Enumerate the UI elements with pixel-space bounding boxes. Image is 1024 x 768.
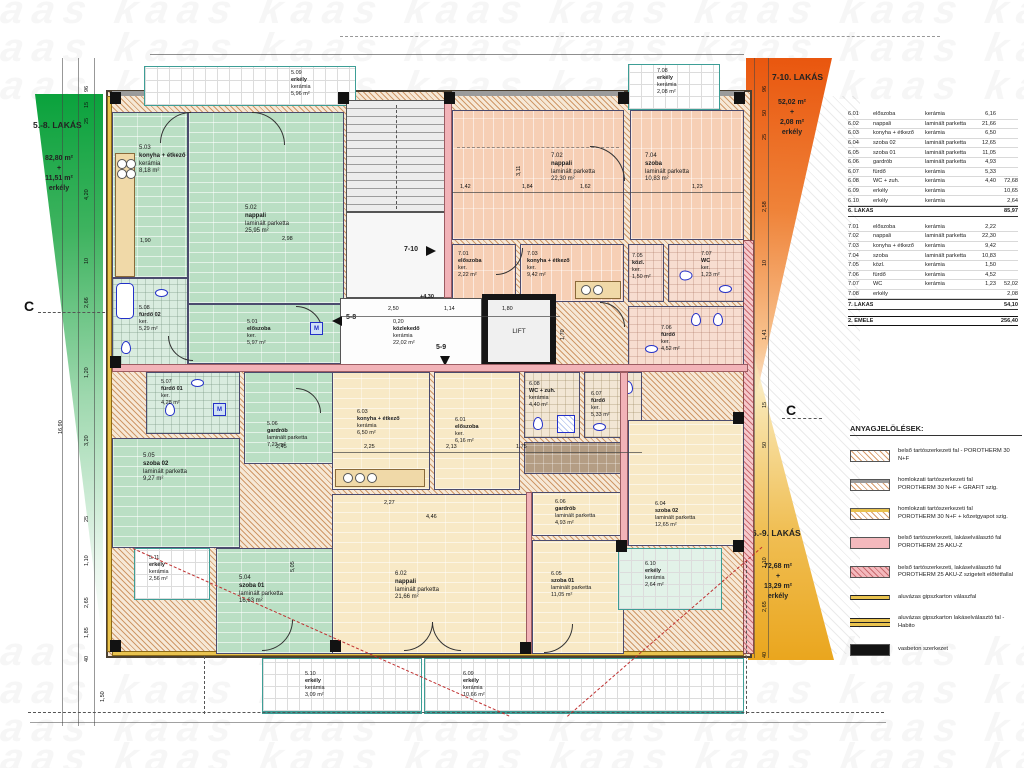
cell-room-number: 6.03: [848, 130, 873, 136]
cell-area: 2,22: [977, 224, 996, 230]
legend-item: belső tartószerkezeti, lakáselválasztó f…: [850, 565, 1022, 581]
arrow-right-icon: [426, 246, 436, 256]
watermark-text: kaas kaas kaas kaas kaas kaas kaas kaas …: [0, 0, 1024, 33]
table-row: 7.07 WC kerámia 1,23 52,02: [848, 280, 1018, 290]
room-number: 7.08: [657, 68, 677, 75]
balcony-609: 6.09 erkély kerámia 10,66 m²: [424, 658, 744, 714]
room-number: 5.01: [247, 319, 271, 326]
cell-total: 52,02: [996, 281, 1018, 287]
stair-label-59: 5-9: [436, 344, 446, 351]
dim-number: 1,41: [762, 329, 768, 340]
room-area: 3,09 m²: [305, 692, 325, 699]
hall-kozlekedo: 0,20 közlekedő kerámia 22,02 m²: [340, 298, 482, 368]
dim-number: 2,50: [388, 306, 399, 312]
cell-area: 6,50: [977, 130, 996, 136]
hall-wall-thickness: 0,20: [393, 319, 420, 326]
aku-wall: [620, 372, 628, 546]
cell-room-number: 7. LAKÁS: [848, 302, 873, 308]
room-area: 10,83 m²: [645, 176, 689, 184]
room-name: erkély: [291, 77, 311, 84]
legend-item: aluvázas gipszkarton válaszfal: [850, 594, 1022, 602]
bidet: [713, 313, 723, 326]
cell-material: kerámia: [925, 178, 977, 184]
table-row: 6.07 fürdő kerámia 5,33: [848, 168, 1018, 178]
room-area: 7,23 m²: [267, 442, 307, 449]
dim-chain-line: [754, 58, 755, 658]
room-material: ker.: [458, 265, 482, 272]
table-row: 7. LAKÁS 54,10: [848, 299, 1018, 310]
aku-wall: [526, 492, 532, 654]
room-area: 11,05 m²: [551, 592, 591, 599]
cell-material: laminált parketta: [925, 253, 977, 259]
room-gardrob-5: 5.06 gardrób laminált parketta 7,23 m²: [244, 372, 344, 464]
room-label: 5.08 fürdő 02 ker. 5,29 m²: [139, 305, 161, 334]
room-material: kerámia: [357, 423, 400, 430]
cell-area: 22,30: [977, 233, 996, 239]
cell-material: kerámia: [925, 224, 977, 230]
cell-room-name: gardrób: [873, 159, 925, 165]
room-label: 6.01 előszoba ker. 6,16 m²: [455, 417, 479, 446]
table-row: 6.06 gardrób laminált parketta 4,93: [848, 158, 1018, 168]
room-area: 21,66 m²: [395, 594, 439, 602]
room-name: konyha + étkező: [527, 258, 570, 265]
stair-label-up: 7-10: [404, 246, 418, 253]
plus-sign: +: [770, 108, 814, 118]
room-material: ker.: [591, 405, 610, 412]
room-furdo01-5: M 5.07 fürdő 01 ker. 4,28 m²: [146, 372, 240, 434]
dim-number: 1,85: [84, 627, 90, 638]
room-label: 5.06 gardrób laminált parketta 7,23 m²: [267, 421, 307, 450]
room-label: 7.04 szoba laminált parketta 10,83 m²: [645, 153, 689, 184]
cell-room-name: erkély: [873, 291, 925, 297]
zone-amber-balcony-m2: 13,29 m²: [756, 582, 800, 592]
zone-green-balcony-label: erkély: [30, 184, 88, 194]
balcony-509: 5.09 erkély kerámia 5,96 m²: [144, 66, 356, 106]
legend-swatch: [850, 450, 890, 462]
table-row: 7.02 nappali laminált parketta 22,30: [848, 232, 1018, 242]
dim-number: 50: [762, 110, 768, 116]
room-name: erkély: [463, 678, 485, 685]
toilet: [691, 313, 701, 326]
room-number: 5.02: [245, 205, 289, 213]
wall-aku-insulated-strip: [743, 240, 754, 654]
ground-line: [30, 722, 886, 723]
room-number: 6.10: [645, 561, 665, 568]
cell-total: 10,65: [996, 188, 1018, 194]
dim-number: 1,84: [522, 184, 533, 190]
room-label: 7.01 előszoba ker. 2,22 m²: [458, 251, 482, 280]
dim-number-outer: 16,90: [58, 420, 64, 434]
dim-number: 40: [762, 652, 768, 658]
cell-total: 54,10: [996, 302, 1018, 308]
cell-room-name: fürdő: [873, 169, 925, 175]
boundary-dashed-line: [28, 712, 884, 713]
legend-swatch: [850, 537, 890, 549]
cell-room-number: 6.08: [848, 178, 873, 184]
legend-text: aluvázas gipszkarton válaszfal: [898, 594, 976, 602]
dim-number: 25: [762, 134, 768, 140]
dim-number: 1,20: [84, 367, 90, 378]
balcony-511: 5.11 erkély kerámia 2,56 m²: [134, 548, 210, 600]
watermark-text: kaas kaas kaas kaas kaas kaas kaas kaas …: [0, 736, 1024, 768]
sink: [191, 379, 204, 387]
room-name: erkély: [305, 678, 325, 685]
room-label: 6.02 nappali laminált parketta 21,66 m²: [395, 571, 439, 602]
cell-material: laminált parketta: [925, 140, 977, 146]
legend-swatch: [850, 644, 890, 656]
room-material: kerámia: [305, 685, 325, 692]
room-label: 5.05 szoba 02 laminált parketta 9,27 m²: [143, 453, 187, 484]
cell-room-number: 2. EMELET ÖSSZESEN: [848, 318, 873, 324]
room-name: WC: [701, 258, 720, 265]
room-material: kerámia: [149, 569, 169, 576]
room-area: 5,29 m²: [139, 326, 161, 333]
room-label: 7.05 közl. ker. 1,50 m²: [632, 253, 651, 282]
table-row: 7.04 szoba laminált parketta 10,83: [848, 251, 1018, 261]
room-material: kerámia: [291, 84, 311, 91]
dim-number: 2,98: [282, 236, 293, 242]
room-label: 5.10 erkély kerámia 3,09 m²: [305, 671, 325, 700]
cell-room-number: 7.08: [848, 291, 873, 297]
legend-line-1: vasbeton szerkezet: [898, 646, 948, 654]
cell-total: 85,97: [996, 208, 1018, 214]
room-name: előszoba: [455, 424, 479, 431]
room-label: 5.03 konyha + étkező kerámia 8,18 m²: [139, 145, 186, 176]
room-name: erkély: [645, 568, 665, 575]
dim-number: 1,62: [580, 184, 591, 190]
room-name: szoba 02: [655, 508, 695, 515]
legend-text: vasbeton szerkezet: [898, 646, 948, 654]
legend-text: homlokzati tartószerkezeti fal POROTHERM…: [898, 477, 998, 493]
cell-room-name: WC: [873, 281, 925, 287]
concrete-column: [338, 92, 349, 104]
washing-machine: M: [213, 403, 226, 416]
dim-number: 50: [762, 442, 768, 448]
legend-line-1: belső tartószerkezeti, lakáselválasztó f…: [898, 535, 1001, 543]
room-area: 4,40 m²: [529, 402, 555, 409]
room-label: 6.08 WC + zuh. kerámia 4,40 m²: [529, 381, 555, 410]
toilet: [533, 417, 543, 430]
zone-green-balcony-m2: 11,51 m²: [30, 174, 88, 184]
dim-number: 2,58: [762, 201, 768, 212]
cell-area: 21,66: [977, 121, 996, 127]
room-material: ker.: [455, 431, 479, 438]
room-name: nappali: [551, 161, 595, 169]
dim-number: 1,23: [692, 184, 703, 190]
dim-number: 96: [762, 86, 768, 92]
cell-room-number: 6.07: [848, 169, 873, 175]
room-material: ker.: [632, 267, 651, 274]
room-area: 5,96 m²: [291, 91, 311, 98]
table-row: 2. EMELET ÖSSZESEN 256,40: [848, 316, 1018, 327]
cell-room-number: 6. LAKÁS: [848, 208, 873, 214]
cell-material: laminált parketta: [925, 159, 977, 165]
room-material: laminált parketta: [551, 585, 591, 592]
room-name: fürdő: [661, 332, 680, 339]
table-row: 6.09 erkély kerámia 10,65: [848, 187, 1018, 197]
cell-area: 11,05: [977, 150, 996, 156]
room-konyha-6: 6.03 konyha + étkező kerámia 6,50 m²: [332, 372, 430, 490]
room-furdo-7: 7.06 fürdő ker. 4,52 m²: [628, 306, 744, 366]
room-label: 7.03 konyha + étkező ker. 9,42 m²: [527, 251, 570, 280]
room-material: kerámia: [657, 82, 677, 89]
dim-number: 25: [84, 516, 90, 522]
plus-sign: +: [30, 164, 88, 174]
cell-area: 9,42: [977, 243, 996, 249]
room-number: 6.06: [555, 499, 595, 506]
room-material: kerámia: [393, 333, 420, 340]
room-label: 6.03 konyha + étkező kerámia 6,50 m²: [357, 409, 400, 438]
room-number: 7.07: [701, 251, 720, 258]
room-number: 6.01: [455, 417, 479, 424]
legend-item: homlokzati tartószerkezeti fal POROTHERM…: [850, 506, 1022, 522]
cell-room-name: előszoba: [873, 111, 925, 117]
room-szoba-7: 7.04 szoba laminált parketta 10,83 m²: [630, 110, 744, 240]
cell-total: 2,64: [996, 198, 1018, 204]
room-area: 2,56 m²: [149, 576, 169, 583]
room-name: szoba 01: [239, 583, 283, 591]
dim-number: 1,80: [502, 306, 513, 312]
room-material: laminált parketta: [143, 469, 187, 477]
concrete-column: [734, 92, 745, 104]
dim-number: 5,05: [290, 561, 296, 572]
legend-text: aluvázas gipszkarton lakáselválasztó fal…: [898, 615, 1022, 631]
dim-number: 10: [84, 258, 90, 264]
dim-chain-line: [62, 58, 63, 726]
room-area: 6,16 m²: [455, 438, 479, 445]
section-marker-c-right: C: [786, 402, 796, 418]
cell-material: kerámia: [925, 188, 977, 194]
table-row: 6.02 nappali laminált parketta 21,66: [848, 120, 1018, 130]
room-area: 1,23 m²: [701, 272, 720, 279]
room-wc-7: 7.07 WC ker. 1,23 m²: [668, 244, 744, 302]
cell-room-number: 6.02: [848, 121, 873, 127]
room-number: 7.06: [661, 325, 680, 332]
cell-room-number: 6.09: [848, 188, 873, 194]
shower: [557, 415, 575, 433]
cell-room-number: 7.04: [848, 253, 873, 259]
legend-line-2: POROTHERM 30 N+F + kőzetgyapot szig.: [898, 514, 1008, 522]
dim-number: 3,20: [84, 435, 90, 446]
sink: [719, 285, 732, 293]
zone-green-title: 5.-8. LAKÁS: [33, 120, 82, 130]
watermark-text: kaas kaas kaas kaas kaas kaas kaas kaas …: [0, 26, 1024, 71]
room-name: fürdő 02: [139, 312, 161, 319]
room-material: ker.: [139, 319, 161, 326]
concrete-column: [618, 92, 629, 104]
legend-item: belső tartószerkezeti, lakáselválasztó f…: [850, 535, 1022, 551]
dim-number: 1,75: [516, 444, 527, 450]
room-area: 8,18 m²: [139, 168, 186, 176]
room-number: 6.04: [655, 501, 695, 508]
legend-line-1: belső tartószerkezeti, lakáselválasztó f…: [898, 565, 1013, 573]
room-label: 0,20 közlekedő kerámia 22,02 m²: [393, 319, 420, 348]
dim-number: 96: [84, 86, 90, 92]
balcony-708: 7.08 erkély kerámia 2,08 m²: [628, 64, 720, 110]
room-name: gardrób: [267, 428, 307, 435]
concrete-column: [110, 92, 121, 104]
room-number: 7.03: [527, 251, 570, 258]
zone-amber-title: 6.-9. LAKÁS: [752, 528, 801, 538]
cell-area: 4,52: [977, 272, 996, 278]
balcony-610: 6.10 erkély kerámia 2,64 m²: [618, 548, 722, 610]
concrete-column: [520, 642, 531, 654]
table-row: 6.01 előszoba kerámia 6,16: [848, 110, 1018, 120]
room-name: nappali: [245, 213, 289, 221]
dim-number: 25: [84, 118, 90, 124]
cell-room-number: 7.03: [848, 243, 873, 249]
room-number: 5.09: [291, 70, 311, 77]
table-row: 6.08 WC + zuh. kerámia 4,40 72,68: [848, 177, 1018, 187]
staircase: [346, 100, 446, 212]
concrete-column: [110, 356, 121, 368]
room-number: 5.10: [305, 671, 325, 678]
legend-swatch: [850, 479, 890, 491]
hob-burner: [126, 169, 136, 179]
room-material: ker.: [247, 333, 271, 340]
cell-room-number: 6.05: [848, 150, 873, 156]
sink: [645, 345, 658, 353]
cell-material: kerámia: [925, 130, 977, 136]
section-line: [782, 418, 822, 419]
concrete-column: [444, 92, 455, 104]
room-label: 6.05 szoba 01 laminált parketta 11,05 m²: [551, 571, 591, 600]
materials-legend: ANYAGJELÖLÉSEK: belső tartószerkezeti fa…: [850, 424, 1022, 670]
dim-number: 2,65: [84, 597, 90, 608]
room-material: laminált parketta: [395, 587, 439, 595]
plus-sign: +: [756, 572, 800, 582]
room-area: 4,28 m²: [161, 400, 183, 407]
dim-number: 2,66: [84, 297, 90, 308]
sink: [593, 423, 606, 431]
toilet: [680, 271, 693, 281]
room-area: 12,65 m²: [655, 522, 695, 529]
room-area: 5,33 m²: [591, 412, 610, 419]
legend-item: belső tartószerkezeti fal - POROTHERM 30…: [850, 448, 1022, 464]
room-material: laminált parketta: [267, 435, 307, 442]
room-material: laminált parketta: [655, 515, 695, 522]
room-material: ker.: [161, 393, 183, 400]
room-number: 6.08: [529, 381, 555, 388]
room-label: 5.02 nappali laminált parketta 25,95 m²: [245, 205, 289, 236]
hob-burner: [593, 285, 603, 295]
room-area: 9,42 m²: [527, 272, 570, 279]
cell-material: kerámia: [925, 281, 977, 287]
hob-burner: [581, 285, 591, 295]
cell-room-name: nappali: [873, 233, 925, 239]
dim-number: 1,70: [560, 329, 566, 340]
room-material: laminált parketta: [555, 513, 595, 520]
cell-material: kerámia: [925, 272, 977, 278]
room-number: 7.01: [458, 251, 482, 258]
room-area: 2,64 m²: [645, 582, 665, 589]
room-area: 2,22 m²: [458, 272, 482, 279]
room-material: kerámia: [529, 395, 555, 402]
dim-number: 2,25: [364, 444, 375, 450]
room-area: 1,50 m²: [632, 274, 651, 281]
table-row: 6.04 szoba 02 laminált parketta 12,65: [848, 139, 1018, 149]
room-material: laminált parketta: [551, 169, 595, 177]
room-area: 9,27 m²: [143, 476, 187, 484]
cell-room-name: konyha + étkező: [873, 130, 925, 136]
legend-text: belső tartószerkezeti, lakáselválasztó f…: [898, 565, 1013, 581]
hob-burner: [355, 473, 365, 483]
concrete-column: [330, 640, 341, 652]
room-name: közl.: [632, 260, 651, 267]
room-number: 7.02: [551, 153, 595, 161]
wall-grafit-strip: [452, 91, 624, 96]
concrete-column: [733, 412, 744, 424]
dim-number: 4,46: [426, 514, 437, 520]
room-label: 7.08 erkély kerámia 2,08 m²: [657, 68, 677, 97]
dim-number: 10: [762, 260, 768, 266]
cell-room-number: 7.02: [848, 233, 873, 239]
boundary-dashed-line: [746, 560, 747, 714]
room-number: 6.03: [357, 409, 400, 416]
room-name: erkély: [657, 75, 677, 82]
room-szoba02-5: 5.05 szoba 02 laminált parketta 9,27 m²: [112, 438, 240, 548]
cell-room-name: közl.: [873, 262, 925, 268]
room-number: 5.03: [139, 145, 186, 153]
room-label: 6.10 erkély kerámia 2,64 m²: [645, 561, 665, 590]
legend-swatch: [850, 508, 890, 520]
dim-number: 15: [762, 402, 768, 408]
zone-green-m2: 82,80 m²: [30, 154, 88, 164]
room-number: 6.07: [591, 391, 610, 398]
legend-item: vasbeton szerkezet: [850, 644, 1022, 656]
lift-shaft: LIFT: [482, 294, 556, 368]
room-label: 5.07 fürdő 01 ker. 4,28 m²: [161, 379, 183, 408]
floor-plan-page: kaas kaas kaas kaas kaas kaas kaas kaas …: [0, 0, 1024, 768]
legend-items: belső tartószerkezeti fal - POROTHERM 30…: [850, 448, 1022, 656]
room-name: konyha + étkező: [357, 416, 400, 423]
room-material: kerámia: [645, 575, 665, 582]
room-material: kerámia: [139, 161, 186, 169]
room-number: 5.07: [161, 379, 183, 386]
cell-area: 5,33: [977, 169, 996, 175]
dim-chain-line: [94, 58, 95, 726]
legend-text: belső tartószerkezeti fal - POROTHERM 30…: [898, 448, 1022, 464]
room-name: konyha + étkező: [139, 153, 186, 161]
table-row: 7.05 közl. kerámia 1,50: [848, 261, 1018, 271]
concrete-column: [616, 540, 627, 552]
aku-wall: [444, 96, 452, 298]
room-area: 4,93 m²: [555, 520, 595, 527]
room-label: 6.06 gardrób laminált parketta 4,93 m²: [555, 499, 595, 528]
legend-title: ANYAGJELÖLÉSEK:: [850, 424, 1022, 436]
dim-number: 15: [84, 102, 90, 108]
cell-room-name: erkély: [873, 188, 925, 194]
cell-room-name: konyha + étkező: [873, 243, 925, 249]
hob-burner: [367, 473, 377, 483]
lift-label: LIFT: [512, 328, 525, 335]
zone-orange-m2: 52,02 m²: [770, 98, 814, 108]
legend-item: aluvázas gipszkarton lakáselválasztó fal…: [850, 615, 1022, 631]
room-name: szoba: [645, 161, 689, 169]
cell-area: 1,50: [977, 262, 996, 268]
room-number: 6.09: [463, 671, 485, 678]
room-number: 5.04: [239, 575, 283, 583]
room-area: 2,08 m²: [657, 89, 677, 96]
room-kozl-7: 7.05 közl. ker. 1,50 m²: [628, 244, 664, 302]
room-label: 7.06 fürdő ker. 4,52 m²: [661, 325, 680, 354]
room-name: közlekedő: [393, 326, 420, 333]
dim-chain-line: [150, 54, 744, 55]
room-number: 5.06: [267, 421, 307, 428]
room-label: 5.09 erkély kerámia 5,96 m²: [291, 70, 311, 99]
room-name: nappali: [395, 579, 439, 587]
zone-orange-area: 52,02 m² + 2,08 m² erkély: [770, 98, 814, 139]
